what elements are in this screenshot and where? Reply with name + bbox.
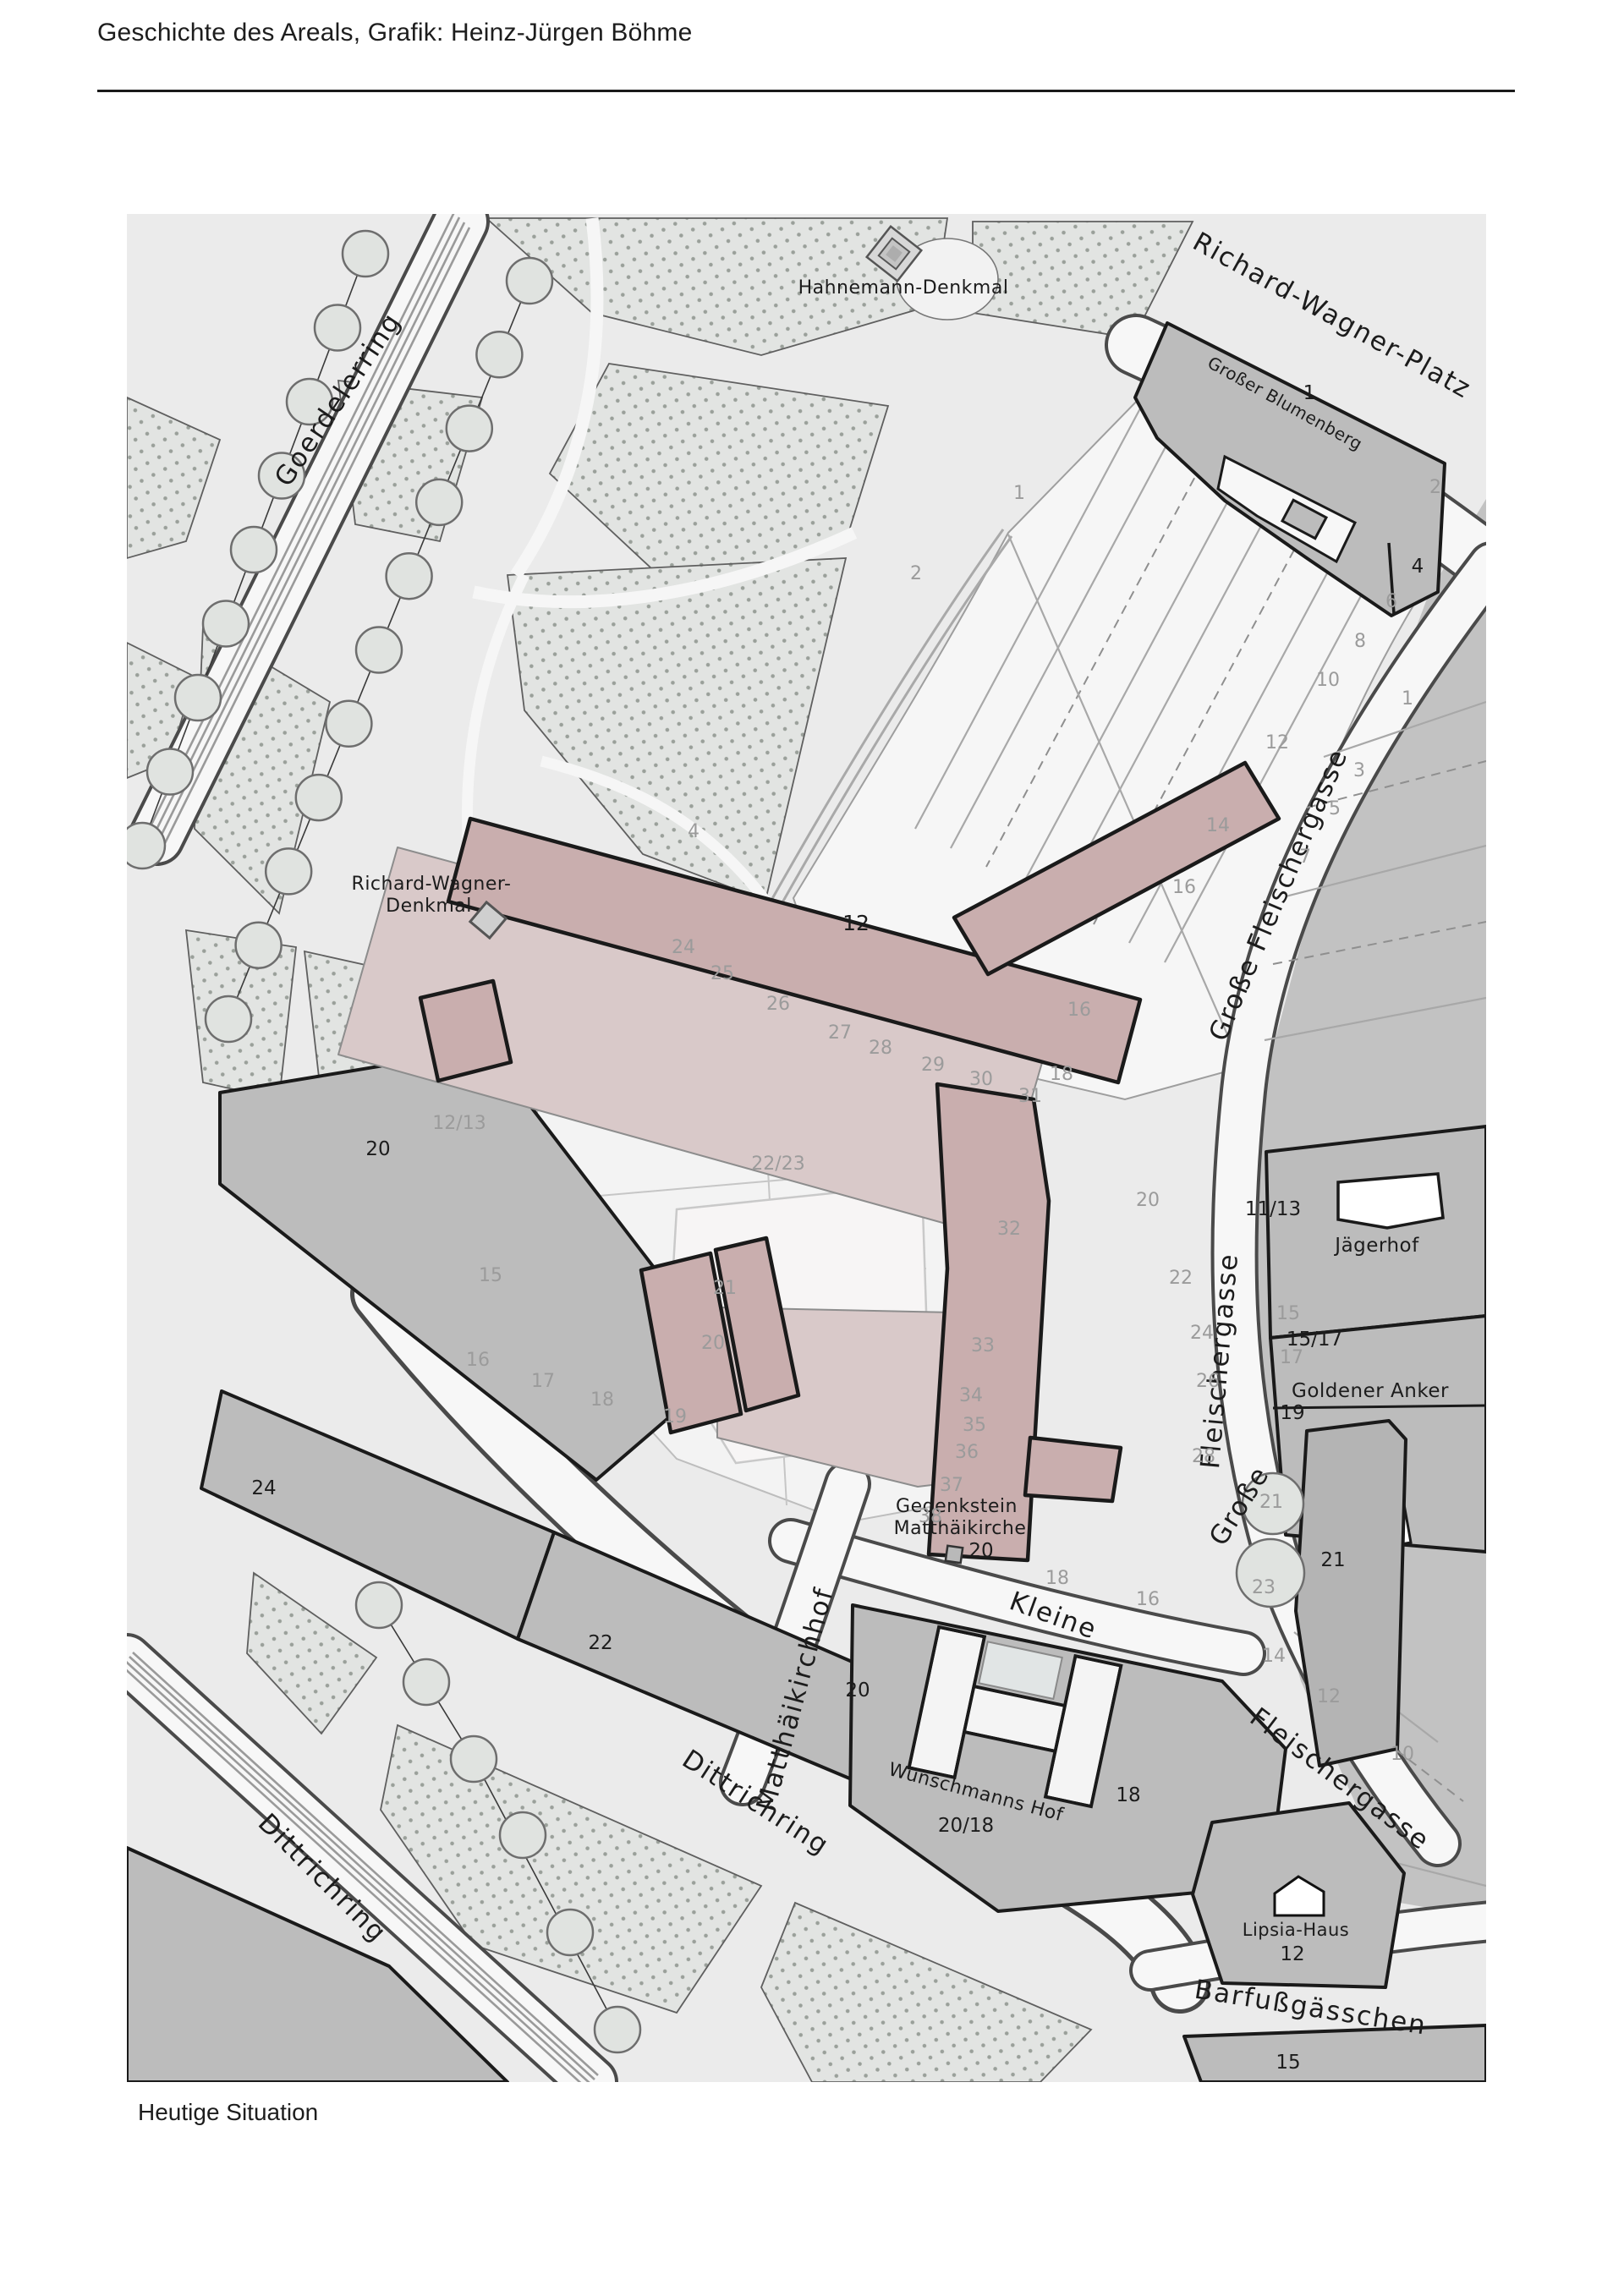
building-21 <box>1296 1421 1406 1766</box>
number-27-label: 27 <box>828 1022 852 1044</box>
historic-band-foot <box>1025 1438 1121 1501</box>
tree-icon <box>547 1910 593 1955</box>
number-18-label: 18 <box>1116 1784 1140 1806</box>
number-20-label: 20 <box>365 1138 390 1160</box>
number-24-label: 24 <box>251 1477 276 1499</box>
historic-building-small-west <box>420 981 511 1081</box>
number-18-label: 18 <box>1045 1568 1069 1589</box>
number-16-label: 16 <box>1067 1000 1091 1021</box>
number-17-label: 17 <box>1280 1347 1303 1368</box>
number-37-label: 37 <box>940 1475 963 1496</box>
number-22-23-label: 22/23 <box>751 1153 804 1175</box>
number-19-label: 19 <box>1280 1402 1304 1424</box>
number-20-label: 20 <box>968 1540 993 1562</box>
number-23-label: 23 <box>1252 1577 1276 1598</box>
goldener-anker-label: Goldener Anker <box>1292 1380 1449 1402</box>
number-10-label: 10 <box>1391 1744 1414 1765</box>
number-25-label: 25 <box>710 963 734 984</box>
richard-wagner-denkmal-2-label: Denkmal <box>386 896 472 917</box>
tree-icon <box>476 332 522 377</box>
gedenkstein-1-label: Gedenkstein <box>896 1496 1018 1517</box>
number-2-label: 2 <box>910 563 922 584</box>
building-15-block <box>1184 2025 1486 2082</box>
number-20-18-label: 20/18 <box>938 1815 994 1837</box>
tree-icon <box>356 1582 402 1628</box>
jaegerhof-courtyard <box>1338 1174 1443 1228</box>
number-31-label: 31 <box>1018 1086 1042 1107</box>
tree-icon <box>387 553 432 599</box>
number-20-label: 20 <box>1136 1190 1160 1211</box>
number-4-label: 4 <box>688 821 700 842</box>
number-7-label: 7 <box>1299 847 1311 868</box>
number-12-label: 12 <box>842 911 870 935</box>
number-6-label: 6 <box>1385 591 1397 612</box>
number-26-label: 26 <box>1196 1371 1220 1392</box>
number-4-label: 4 <box>1412 556 1424 578</box>
number-1-label: 1 <box>1013 483 1025 504</box>
number-17-label: 17 <box>531 1371 555 1392</box>
number-32-label: 32 <box>997 1219 1021 1240</box>
number-12-label: 12 <box>1317 1686 1341 1707</box>
number-16-label: 16 <box>466 1350 490 1371</box>
number-24-label: 24 <box>1190 1323 1214 1344</box>
number-18-label: 18 <box>1050 1064 1073 1085</box>
gedenkstein-icon <box>946 1546 963 1563</box>
number-33-label: 33 <box>971 1335 995 1356</box>
number-5-label: 5 <box>1329 798 1341 819</box>
number-21-label: 21 <box>713 1278 737 1299</box>
number-38-label: 38 <box>919 1506 942 1527</box>
tree-icon <box>175 675 221 721</box>
number-12-label: 12 <box>1265 732 1289 753</box>
tree-icon <box>147 749 193 795</box>
number-22-label: 22 <box>1169 1268 1193 1289</box>
tree-icon <box>326 701 371 747</box>
number-34-label: 34 <box>959 1385 983 1406</box>
number-10-label: 10 <box>1316 670 1340 691</box>
tree-icon <box>236 923 282 968</box>
page-title: Geschichte des Areals, Grafik: Heinz-Jür… <box>97 19 692 47</box>
number-26-label: 26 <box>766 994 790 1015</box>
tree-icon <box>206 996 251 1042</box>
tree-icon <box>343 231 388 277</box>
number-11-13-label: 11/13 <box>1245 1198 1301 1220</box>
tree-icon <box>507 258 552 304</box>
jaegerhof-label: Jägerhof <box>1333 1235 1419 1257</box>
number-1-label: 1 <box>1303 382 1316 404</box>
tree-icon <box>266 848 311 894</box>
tree-icon <box>119 823 165 869</box>
number-30-label: 30 <box>969 1069 993 1090</box>
map-caption: Heutige Situation <box>138 2099 318 2126</box>
tree-icon <box>403 1659 449 1705</box>
number-8-label: 8 <box>1354 631 1366 652</box>
tree-icon <box>595 2007 640 2052</box>
tree-icon <box>447 406 492 452</box>
tree-icon <box>231 527 277 573</box>
number-21-label: 21 <box>1320 1549 1345 1571</box>
city-map: GoerdelerringRichard-Wagner-PlatzGroße F… <box>0 0 1624 2296</box>
number-24-label: 24 <box>672 937 695 958</box>
number-1-label: 1 <box>1402 688 1413 710</box>
number-12-13-label: 12/13 <box>432 1113 486 1134</box>
number-28-label: 28 <box>869 1038 892 1059</box>
number-14-label: 14 <box>1206 815 1230 836</box>
gedenkstein-2-label: Matthäikirche <box>894 1518 1027 1539</box>
number-18-label: 18 <box>590 1389 614 1411</box>
number-28-label: 28 <box>1192 1446 1215 1467</box>
tree-icon <box>356 627 402 673</box>
number-29-label: 29 <box>921 1055 945 1076</box>
number-15-label: 15 <box>1276 2052 1300 2074</box>
tree-icon <box>500 1812 546 1858</box>
tree-icon <box>416 479 462 525</box>
tree-icon <box>203 601 249 647</box>
tree-icon <box>296 775 342 820</box>
number-22-label: 22 <box>588 1632 612 1654</box>
number-16-label: 16 <box>1172 877 1196 898</box>
number-16-label: 16 <box>1136 1589 1160 1610</box>
number-36-label: 36 <box>955 1442 979 1463</box>
number-2-label: 2 <box>1429 477 1441 498</box>
number-12-label: 12 <box>1280 1943 1304 1965</box>
number-14-label: 14 <box>1262 1646 1286 1667</box>
hahnemann-denkmal-label: Hahnemann-Denkmal <box>798 277 1009 299</box>
page: Geschichte des Areals, Grafik: Heinz-Jür… <box>0 0 1624 2296</box>
tree-icon <box>451 1736 497 1782</box>
tree-icon <box>315 305 360 351</box>
number-19-label: 19 <box>663 1406 687 1427</box>
number-15-label: 15 <box>1276 1303 1300 1324</box>
number-20-label: 20 <box>701 1333 725 1354</box>
header-rule <box>97 90 1515 92</box>
richard-wagner-denkmal-1-label: Richard-Wagner- <box>352 874 512 895</box>
number-35-label: 35 <box>963 1415 986 1436</box>
lipsia-haus-label: Lipsia-Haus <box>1243 1920 1350 1940</box>
number-21-label: 21 <box>1259 1492 1283 1513</box>
number-3-label: 3 <box>1353 760 1365 781</box>
number-20-label: 20 <box>845 1680 870 1701</box>
number-15-label: 15 <box>479 1265 502 1286</box>
